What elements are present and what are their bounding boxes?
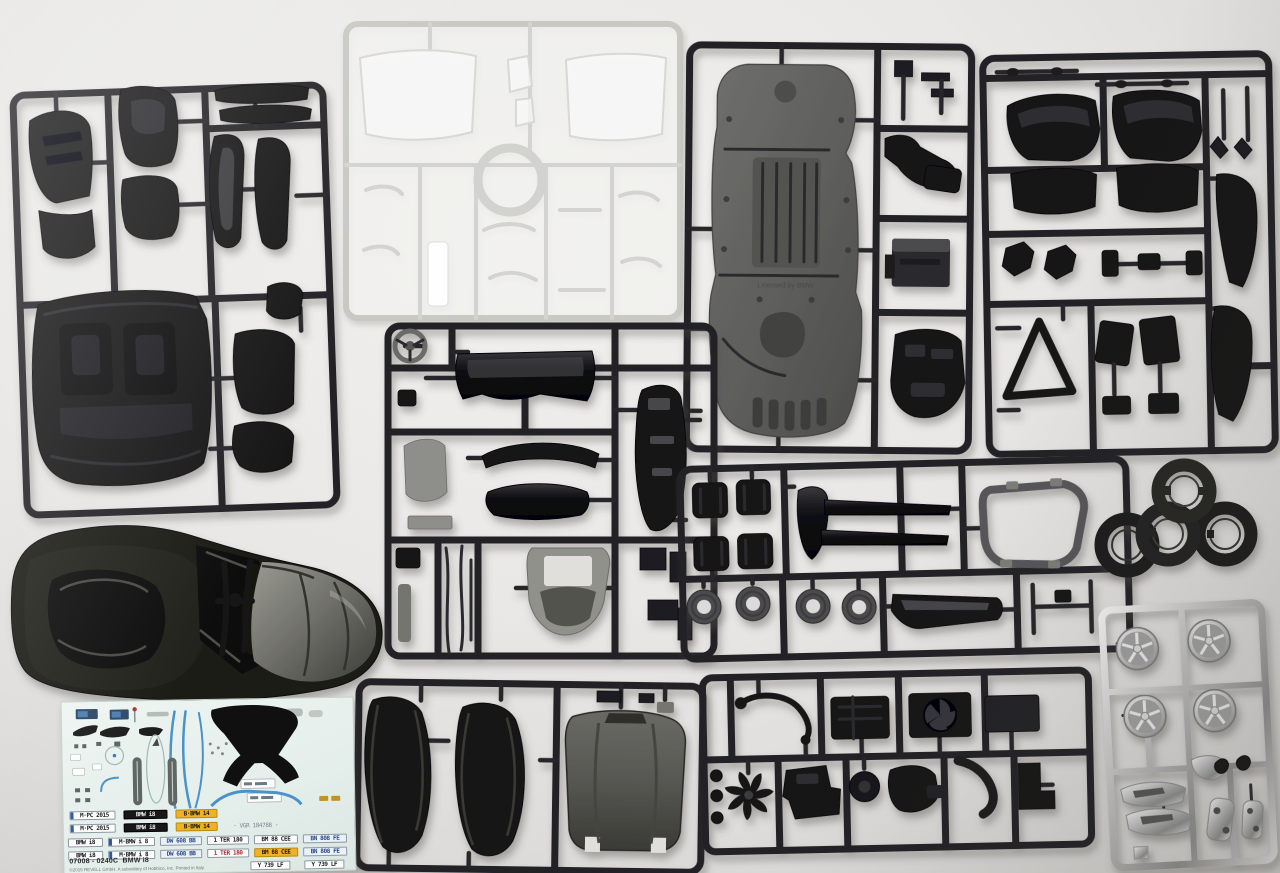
drum-part xyxy=(849,771,880,802)
decal-license-plate: DW 608 BB xyxy=(160,849,202,859)
seat-cushion-parts xyxy=(692,479,773,571)
engine-mount-part xyxy=(831,696,890,739)
bumper-valance-part xyxy=(39,209,96,259)
decal-license-plate: B·BMW 14 xyxy=(176,822,218,832)
spoiler-part xyxy=(486,484,589,520)
knuckle-part xyxy=(1044,245,1077,280)
hood-part xyxy=(564,710,686,853)
rocker-panel-part xyxy=(891,592,1003,630)
sill-strip-part xyxy=(1216,173,1258,287)
decal-license-plate: Y 739 LF xyxy=(304,860,344,870)
decal-blue-stripe xyxy=(183,710,191,808)
decal-license-plate: M·PC 2015 xyxy=(70,824,116,834)
decal-license-plate: BM 88 CEE xyxy=(254,834,298,844)
engine-cover-part xyxy=(527,548,610,635)
hood xyxy=(251,562,376,682)
gearbox-part xyxy=(782,765,841,819)
decal-license-plate: M·BMW i 8 xyxy=(108,837,155,847)
headrest-part xyxy=(265,282,303,320)
battery-box-part xyxy=(885,238,950,287)
chrome-wheel-part xyxy=(1193,689,1237,733)
rear-deck-opening xyxy=(48,570,165,669)
chassis-molded-text: Licensed by BMW xyxy=(757,282,814,289)
side-skirt-part xyxy=(219,104,312,125)
rear-window-part xyxy=(566,54,666,141)
engine-block-part xyxy=(890,329,965,418)
windshield-part xyxy=(360,50,476,140)
decal-copyright: ©2015 REVELL GmbH. A subsidiary of Hobbi… xyxy=(69,865,204,872)
wheel-arch-liner-part xyxy=(1116,163,1199,213)
wing-element-part xyxy=(482,443,599,468)
rear-wing-part xyxy=(797,483,952,559)
decal-license-plate: DW 608 BB xyxy=(160,836,202,846)
decal-blue-stripe xyxy=(194,712,204,808)
sprue-suspension-arches xyxy=(983,54,1276,455)
knuckle-part xyxy=(1002,242,1035,277)
decal-license-plate: BMW i8 xyxy=(68,838,103,848)
sprue-seats-discs-wing xyxy=(680,459,1131,660)
decal-vin-text: · VGR 184788 · xyxy=(224,821,288,831)
door-trim-part xyxy=(253,137,293,250)
decal-license-plate: BMW i8 xyxy=(123,810,167,820)
decal-license-plate: Y 739 LF xyxy=(250,861,290,871)
decal-license-plate: M·PC 2015 xyxy=(69,811,115,821)
fan-blade-part xyxy=(723,769,774,821)
sprue-engine-cooling xyxy=(702,670,1092,852)
hose-part xyxy=(741,695,809,742)
sill-strip-part xyxy=(1210,305,1253,421)
wheel-arch-liner-part xyxy=(1010,168,1097,215)
sprue-chassis: Licensed by BMW xyxy=(686,45,972,451)
wheel-arch-liner-part xyxy=(1007,93,1101,162)
model-kit-photo: Licensed by BMW xyxy=(0,0,1280,873)
sprue-clear-glazing xyxy=(346,24,680,318)
decal-license-plate: BMW i8 xyxy=(124,823,168,833)
chrome-wheel-part xyxy=(1115,627,1159,671)
seat-back-part xyxy=(232,329,297,416)
decal-license-plate: 1 TER 180 xyxy=(207,835,249,845)
seat-back-part xyxy=(232,421,295,474)
decal-sheet: M·PC 2015 BMW i8 B·BMW 14 M·PC 2015 BMW … xyxy=(61,696,357,873)
sprue-doors-hood xyxy=(357,682,704,873)
decal-license-plate: 1 TER 180 xyxy=(207,848,249,858)
window-frame-part xyxy=(982,484,1085,566)
subframe-part xyxy=(1005,321,1072,396)
chrome-wheel-part xyxy=(1187,619,1231,663)
decal-license-plate: BN 808 FE xyxy=(303,847,347,857)
seat-cushion-part xyxy=(121,175,181,241)
tire xyxy=(1199,508,1251,560)
decal-steering-cover xyxy=(211,704,299,787)
sprue-interior-parts xyxy=(13,80,338,515)
sprue-chrome-wheels xyxy=(1101,602,1274,868)
radiator-part xyxy=(985,695,1040,732)
pipe-part xyxy=(958,760,994,815)
chrome-wheel-part xyxy=(1123,694,1167,738)
fan-shroud-part xyxy=(909,692,972,737)
body-shell xyxy=(11,526,382,701)
decal-license-plate: B·BMW 14 xyxy=(175,809,217,819)
sprue-dashboard-spoilers xyxy=(388,326,714,656)
dash-console-part xyxy=(404,439,447,501)
decal-license-plate: BN 808 FE xyxy=(303,834,347,844)
decal-kit-number: 07008 - 0240C BMW i8 xyxy=(69,857,149,865)
decal-license-plate: BM 88 CEE xyxy=(254,847,298,857)
